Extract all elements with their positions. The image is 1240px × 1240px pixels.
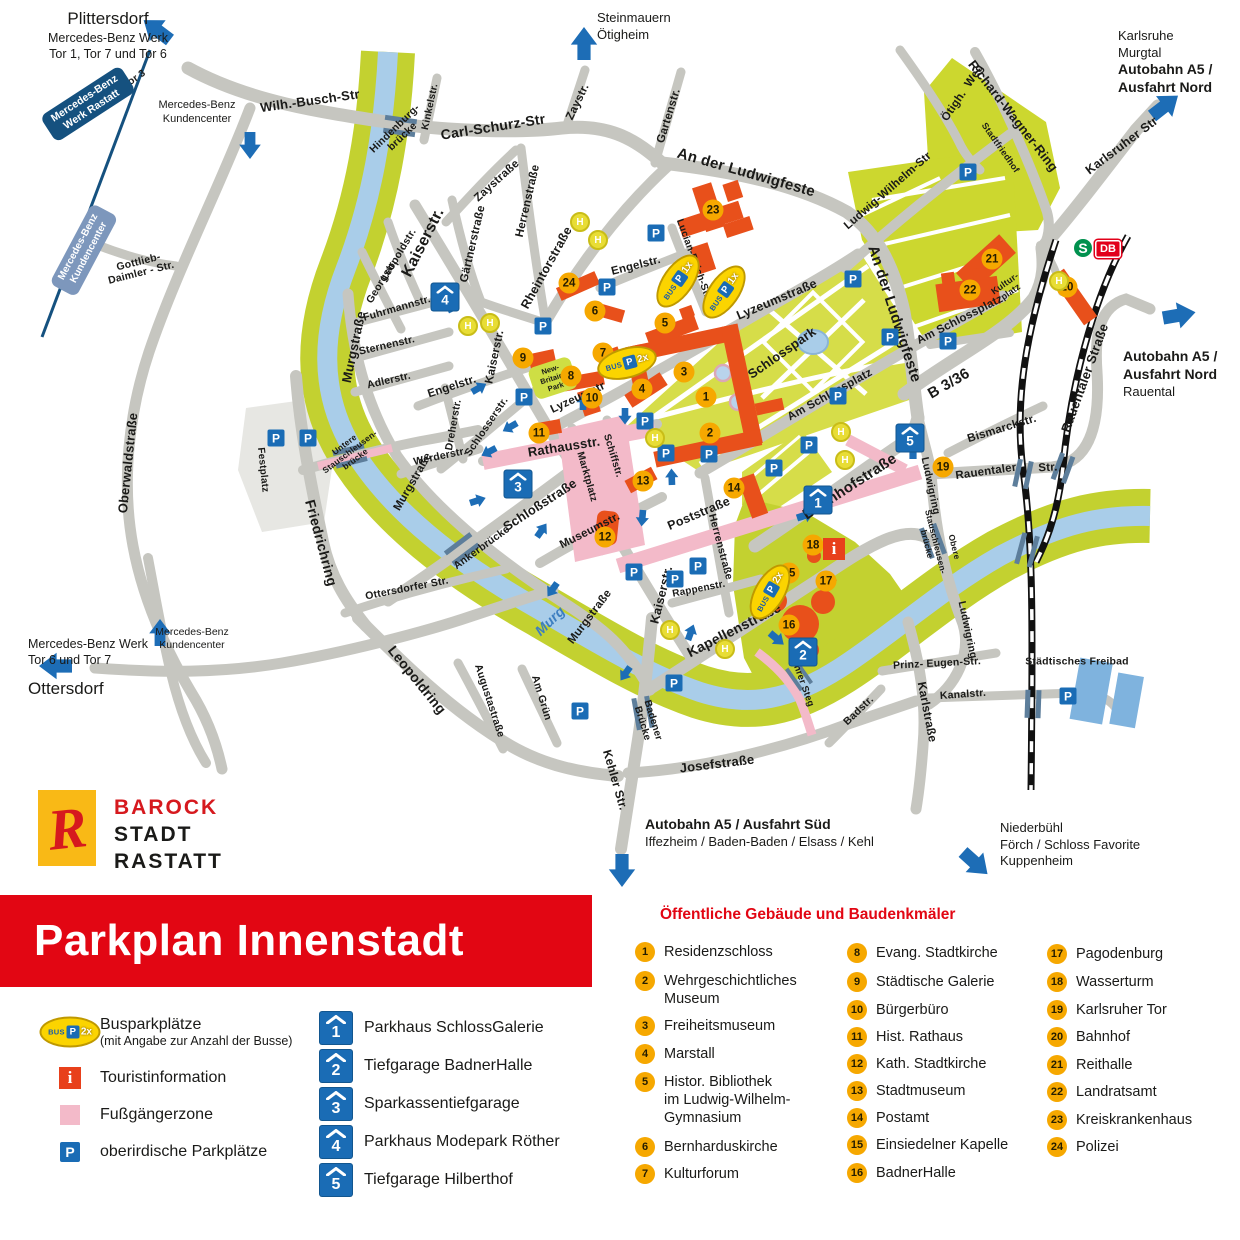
- building-legend-item-1: 1Residenzschloss: [635, 942, 773, 962]
- direction-arrow: [39, 653, 72, 679]
- legend-pedestrian-label: Fußgängerzone: [100, 1106, 213, 1124]
- building-legend-item-7: 7Kulturforum: [635, 1164, 739, 1184]
- mercedes-boundary-line: [42, 50, 150, 337]
- building-number-badge: 23: [1047, 1110, 1067, 1130]
- building-legend-item-16: 16BadnerHalle: [847, 1163, 956, 1183]
- building-legend-item-4: 4Marstall: [635, 1044, 715, 1064]
- building-number-badge: 2: [635, 971, 655, 991]
- building-number-badge: 12: [847, 1054, 867, 1074]
- garage-label: Parkhaus Modepark Röther: [364, 1133, 560, 1151]
- building-legend-item-8: 8Evang. Stadtkirche: [847, 943, 998, 963]
- building-number-badge: 16: [847, 1163, 867, 1183]
- building-label: Kreiskrankenhaus: [1076, 1110, 1192, 1129]
- bus-parking-icon: BUSP2x: [40, 1017, 101, 1048]
- building-number-badge: 7: [635, 1164, 655, 1184]
- building-label: Stadtmuseum: [876, 1081, 965, 1100]
- building-number-badge: 13: [847, 1081, 867, 1101]
- map-canvas: [0, 0, 1240, 1240]
- building-legend-item-14: 14Postamt: [847, 1108, 929, 1128]
- page-title: Parkplan Innenstadt: [34, 916, 464, 966]
- building-number-badge: 11: [847, 1027, 867, 1047]
- badnerhalle-building: [781, 605, 819, 643]
- building-number-badge: 3: [635, 1016, 655, 1036]
- garage-legend-item-5: 5Tiefgarage Hilberthof: [320, 1164, 513, 1196]
- building-number-badge: 15: [847, 1135, 867, 1155]
- schlosspark-pond: [798, 330, 828, 354]
- garage-label: Parkhaus SchlossGalerie: [364, 1019, 544, 1037]
- legend-bus-sub: (mit Angabe zur Anzahl der Busse): [100, 1034, 292, 1048]
- direction-arrow: [468, 492, 488, 510]
- building-label: Einsiedelner Kapelle: [876, 1135, 1008, 1154]
- legend-tourist-label: Touristinformation: [100, 1069, 226, 1087]
- building-label: BadnerHalle: [876, 1163, 956, 1182]
- legend-bus-row: Busparkplätze (mit Angabe zur Anzahl der…: [100, 1016, 292, 1048]
- direction-arrow: [571, 27, 597, 60]
- pedestrian-zone-icon: [60, 1105, 80, 1125]
- building-legend-item-17: 17Pagodenburg: [1047, 944, 1163, 964]
- garage-icon-3: 3: [320, 1088, 352, 1120]
- building-number-badge: 18: [1047, 972, 1067, 992]
- building-label: Wehrgeschichtliches Museum: [664, 971, 797, 1008]
- garage-icon-4: 4: [320, 1126, 352, 1158]
- building-number-badge: 4: [635, 1044, 655, 1064]
- building-number-badge: 17: [1047, 944, 1067, 964]
- garage-label: Sparkassentiefgarage: [364, 1095, 520, 1113]
- garage-legend-item-3: 3Sparkassentiefgarage: [320, 1088, 520, 1120]
- building-label: Pagodenburg: [1076, 944, 1163, 963]
- building-legend-item-10: 10Bürgerbüro: [847, 1000, 949, 1020]
- building-label: Evang. Stadtkirche: [876, 943, 998, 962]
- building-legend-item-23: 23Kreiskrankenhaus: [1047, 1110, 1192, 1130]
- building-label: Kulturforum: [664, 1164, 739, 1183]
- direction-arrow: [954, 842, 996, 884]
- building-label: Kath. Stadtkirche: [876, 1054, 986, 1073]
- building-legend-item-15: 15Einsiedelner Kapelle: [847, 1135, 1008, 1155]
- garage-label: Tiefgarage BadnerHalle: [364, 1057, 532, 1075]
- building-label: Städtische Galerie: [876, 972, 994, 991]
- building-legend-item-21: 21Reithalle: [1047, 1055, 1132, 1075]
- building-number-badge: 5: [635, 1072, 655, 1092]
- garage-legend-item-4: 4Parkhaus Modepark Röther: [320, 1126, 560, 1158]
- garage-legend-item-2: 2Tiefgarage BadnerHalle: [320, 1050, 532, 1082]
- building-legend-item-13: 13Stadtmuseum: [847, 1081, 965, 1101]
- direction-arrow: [136, 10, 178, 51]
- building-legend-item-12: 12Kath. Stadtkirche: [847, 1054, 986, 1074]
- bahnhof-building: [1051, 269, 1097, 326]
- legend-parking-label: oberirdische Parkplätze: [100, 1143, 267, 1161]
- garage-icon-2: 2: [320, 1050, 352, 1082]
- legend-bus-label: Busparkplätze: [100, 1016, 292, 1034]
- building-label: Residenzschloss: [664, 942, 773, 961]
- building-label: Landratsamt: [1076, 1082, 1157, 1101]
- building-number-badge: 8: [847, 943, 867, 963]
- building-legend-item-19: 19Karlsruher Tor: [1047, 1000, 1167, 1020]
- building-legend-item-9: 9Städtische Galerie: [847, 972, 994, 992]
- city-logo: R: [38, 790, 96, 866]
- building-label: Polizei: [1076, 1137, 1119, 1156]
- buildings-legend-title: Öffentliche Gebäude und Baudenkmäler: [660, 906, 955, 924]
- building-legend-item-18: 18Wasserturm: [1047, 972, 1154, 992]
- building-number-badge: 9: [847, 972, 867, 992]
- building-label: Wasserturm: [1076, 972, 1154, 991]
- garage-legend-item-1: 1Parkhaus SchlossGalerie: [320, 1012, 544, 1044]
- building-label: Freiheitsmuseum: [664, 1016, 775, 1035]
- building-legend-item-2: 2Wehrgeschichtliches Museum: [635, 971, 797, 1008]
- building-number-badge: 6: [635, 1137, 655, 1157]
- garage-icon-1: 1: [320, 1012, 352, 1044]
- building-legend-item-11: 11Hist. Rathaus: [847, 1027, 963, 1047]
- building-number-badge: 21: [1047, 1055, 1067, 1075]
- building-label: Postamt: [876, 1108, 929, 1127]
- building-number-badge: 22: [1047, 1082, 1067, 1102]
- garage-icon-5: 5: [320, 1164, 352, 1196]
- building-label: Marstall: [664, 1044, 715, 1063]
- building-label: Histor. Bibliothek im Ludwig-Wilhelm- Gy…: [664, 1072, 791, 1127]
- surface-parking-icon: P: [60, 1142, 80, 1162]
- building-number-badge: 1: [635, 942, 655, 962]
- building-legend-item-22: 22Landratsamt: [1047, 1082, 1157, 1102]
- building-label: Bahnhof: [1076, 1027, 1130, 1046]
- building-number-badge: 20: [1047, 1027, 1067, 1047]
- building-legend-item-24: 24Polizei: [1047, 1137, 1119, 1157]
- logo-line-1: BAROCK: [114, 796, 218, 820]
- title-banner: Parkplan Innenstadt: [0, 895, 592, 987]
- garage-label: Tiefgarage Hilberthof: [364, 1171, 513, 1189]
- building-label: Reithalle: [1076, 1055, 1132, 1074]
- direction-arrow: [665, 468, 679, 485]
- direction-arrow: [532, 520, 552, 541]
- building-label: Bürgerbüro: [876, 1000, 949, 1019]
- building-number-badge: 19: [1047, 1000, 1067, 1020]
- building-number-badge: 10: [847, 1000, 867, 1020]
- building-legend-item-5: 5Histor. Bibliothek im Ludwig-Wilhelm- G…: [635, 1072, 791, 1127]
- building-legend-item-6: 6Bernharduskirche: [635, 1137, 778, 1157]
- tourist-info-icon: i: [59, 1067, 81, 1089]
- logo-letter: R: [44, 793, 89, 864]
- direction-arrow: [609, 854, 635, 887]
- parkplan-rastatt-map: { "title_banner": "Parkplan Innenstadt",…: [0, 0, 1240, 1240]
- direction-arrow: [1161, 299, 1198, 331]
- building-legend-item-3: 3Freiheitsmuseum: [635, 1016, 775, 1036]
- building-number-badge: 24: [1047, 1137, 1067, 1157]
- logo-line-3: RASTATT: [114, 850, 223, 874]
- logo-line-2: STADT: [114, 823, 192, 847]
- building-number-badge: 14: [847, 1108, 867, 1128]
- building-label: Karlsruher Tor: [1076, 1000, 1167, 1019]
- building-label: Hist. Rathaus: [876, 1027, 963, 1046]
- building-label: Bernharduskirche: [664, 1137, 778, 1156]
- building-legend-item-20: 20Bahnhof: [1047, 1027, 1130, 1047]
- freibad-buildings: [1070, 658, 1146, 731]
